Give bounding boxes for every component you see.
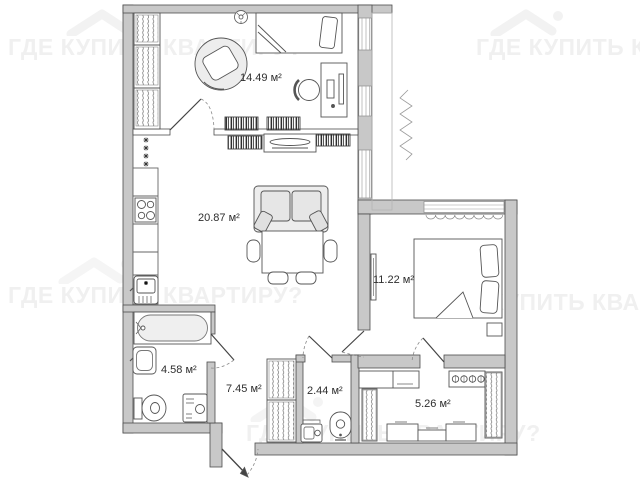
bathtub bbox=[134, 312, 211, 344]
room-label: 2.44 м² bbox=[307, 385, 343, 397]
kitchen-lower-counters bbox=[387, 422, 476, 441]
shelf-radiator bbox=[225, 117, 258, 130]
room-label: 11.22 м² bbox=[373, 274, 414, 286]
partition-left bbox=[133, 129, 170, 135]
hall-wardrobe bbox=[267, 359, 296, 442]
stove bbox=[135, 198, 156, 222]
wall-entry-step bbox=[210, 423, 222, 467]
desk bbox=[321, 63, 347, 117]
room-745-furniture bbox=[222, 359, 296, 477]
counter bbox=[387, 424, 418, 441]
wall-bath-top bbox=[123, 305, 215, 312]
shelf-radiator bbox=[267, 117, 300, 130]
wall-wc-top-a bbox=[296, 355, 305, 362]
wall-kitchen-top-b bbox=[444, 355, 505, 368]
room-526-furniture bbox=[359, 338, 502, 441]
kitchen-shelves-right bbox=[485, 372, 502, 438]
wall-bedroom-left bbox=[358, 214, 370, 330]
counter bbox=[418, 430, 446, 441]
wall-bottom bbox=[255, 443, 517, 455]
floor-plan-drawing: 14.49 м² 20.87 м² 11.22 м² 4.58 м² 7.45 … bbox=[0, 0, 640, 480]
wall-kitchen-top-a bbox=[358, 355, 420, 368]
door-wc bbox=[303, 336, 332, 358]
windows bbox=[359, 13, 504, 219]
ceiling-fan-icon bbox=[235, 11, 248, 24]
floor-plan-page: ГДЕ КУПИТЬ КВАРТИРУ? ГДЕ КУПИТЬ КВАРТИРУ… bbox=[0, 0, 640, 480]
toilet-tank bbox=[134, 398, 142, 419]
room-1449-furniture bbox=[134, 11, 347, 131]
kitchen-shelves-left bbox=[362, 389, 377, 441]
single-bed bbox=[256, 13, 342, 53]
shelf-radiator bbox=[316, 134, 350, 146]
chair bbox=[247, 240, 260, 262]
kitchen-upper-counter bbox=[359, 371, 419, 388]
entrance-door bbox=[222, 449, 258, 477]
wall-top bbox=[123, 5, 392, 13]
balcony-break-line bbox=[400, 90, 412, 160]
room-2087-furniture bbox=[130, 134, 350, 304]
double-bed bbox=[414, 239, 502, 318]
dining-table bbox=[262, 231, 323, 273]
wall-bath-right-b bbox=[207, 362, 215, 423]
room-label: 20.87 м² bbox=[198, 212, 240, 224]
room-label: 5.26 м² bbox=[415, 398, 451, 410]
chair bbox=[324, 240, 337, 262]
shelf-radiator bbox=[228, 136, 262, 149]
wc-washer bbox=[301, 420, 322, 442]
room-label: 7.45 м² bbox=[226, 383, 262, 395]
window-bedroom bbox=[424, 202, 504, 213]
pillow bbox=[319, 16, 338, 49]
wall-left bbox=[123, 5, 133, 433]
sofa bbox=[253, 186, 329, 233]
monitor bbox=[339, 74, 344, 104]
pillow bbox=[480, 244, 499, 277]
kitchen-stove bbox=[449, 371, 485, 387]
wardrobe bbox=[134, 13, 160, 129]
desk-chair bbox=[295, 80, 320, 101]
wall-bath-bottom bbox=[123, 423, 222, 433]
keyboard bbox=[327, 80, 334, 98]
vent-symbols bbox=[144, 138, 149, 167]
counter bbox=[446, 424, 476, 441]
pillow bbox=[480, 280, 499, 313]
wall-right bbox=[505, 200, 517, 455]
bathroom-sink bbox=[130, 347, 156, 374]
chair bbox=[268, 272, 288, 284]
toilet bbox=[134, 395, 166, 421]
door-bedroom bbox=[342, 331, 364, 357]
chair bbox=[296, 272, 316, 284]
kitchen-strip bbox=[130, 138, 158, 305]
door-room14 bbox=[170, 99, 214, 130]
bedside-table bbox=[487, 323, 502, 336]
room-label: 14.49 м² bbox=[240, 72, 282, 84]
tv-stand bbox=[264, 134, 316, 152]
kitchen-sink bbox=[130, 276, 158, 304]
curtain-scallops bbox=[426, 215, 503, 219]
room-label: 4.58 м² bbox=[161, 364, 197, 376]
wc-toilet bbox=[330, 412, 351, 440]
balcony-ledge bbox=[372, 13, 392, 210]
washing-machine bbox=[183, 394, 207, 422]
